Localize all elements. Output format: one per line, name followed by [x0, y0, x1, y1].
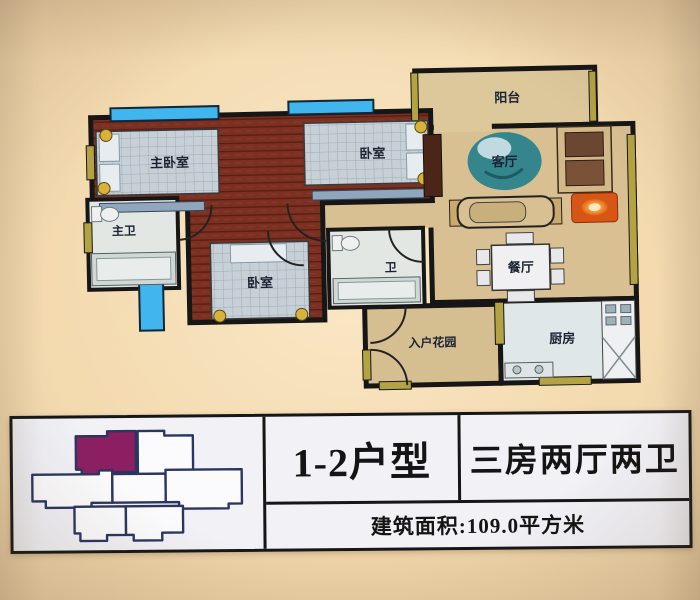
label-bath: 卫 [385, 260, 397, 274]
label-entry-garden: 入户花园 [408, 334, 456, 350]
floor-plan: 阳台 客厅 餐厅 厨房 入户花园 主卧室 卧室 卧室 主卫 卫 [74, 46, 656, 413]
building-key-plan [12, 417, 266, 551]
floor-plan-drawing: 阳台 客厅 餐厅 厨房 入户花园 主卧室 卧室 卧室 主卫 卫 [74, 46, 656, 413]
window-side [139, 282, 164, 330]
label-master-bath: 主卫 [112, 223, 136, 238]
hall-opening [426, 204, 436, 226]
floor-lamp [571, 193, 618, 223]
label-living: 客厅 [491, 154, 517, 170]
unit-type-label: 1-2户型 [265, 415, 461, 502]
label-bedroom-bottom: 卧室 [247, 275, 273, 291]
layout-type-label: 三房两厅两卫 [460, 413, 689, 500]
window-master-bedroom [110, 106, 218, 121]
label-kitchen: 厨房 [549, 331, 575, 347]
window-bedroom-top [288, 100, 373, 115]
label-balcony: 阳台 [494, 90, 520, 106]
kitchen-counter [602, 300, 637, 379]
key-plan-drawing [18, 423, 257, 545]
label-master-bedroom: 主卧室 [150, 155, 189, 171]
label-bedroom-top: 卧室 [359, 146, 385, 162]
area-label: 建筑面积:109.0平方米 [266, 501, 689, 549]
label-dining: 餐厅 [507, 259, 534, 275]
sofa [557, 126, 612, 193]
kitchen-sink [505, 362, 553, 378]
balcony-door-opening [434, 122, 492, 132]
tv-cabinet [423, 134, 442, 196]
coffee-table [449, 196, 562, 228]
info-panel: 1-2户型 三房两厅两卫 建筑面积:109.0平方米 [9, 410, 692, 554]
bedroom-top-bench [312, 189, 424, 200]
